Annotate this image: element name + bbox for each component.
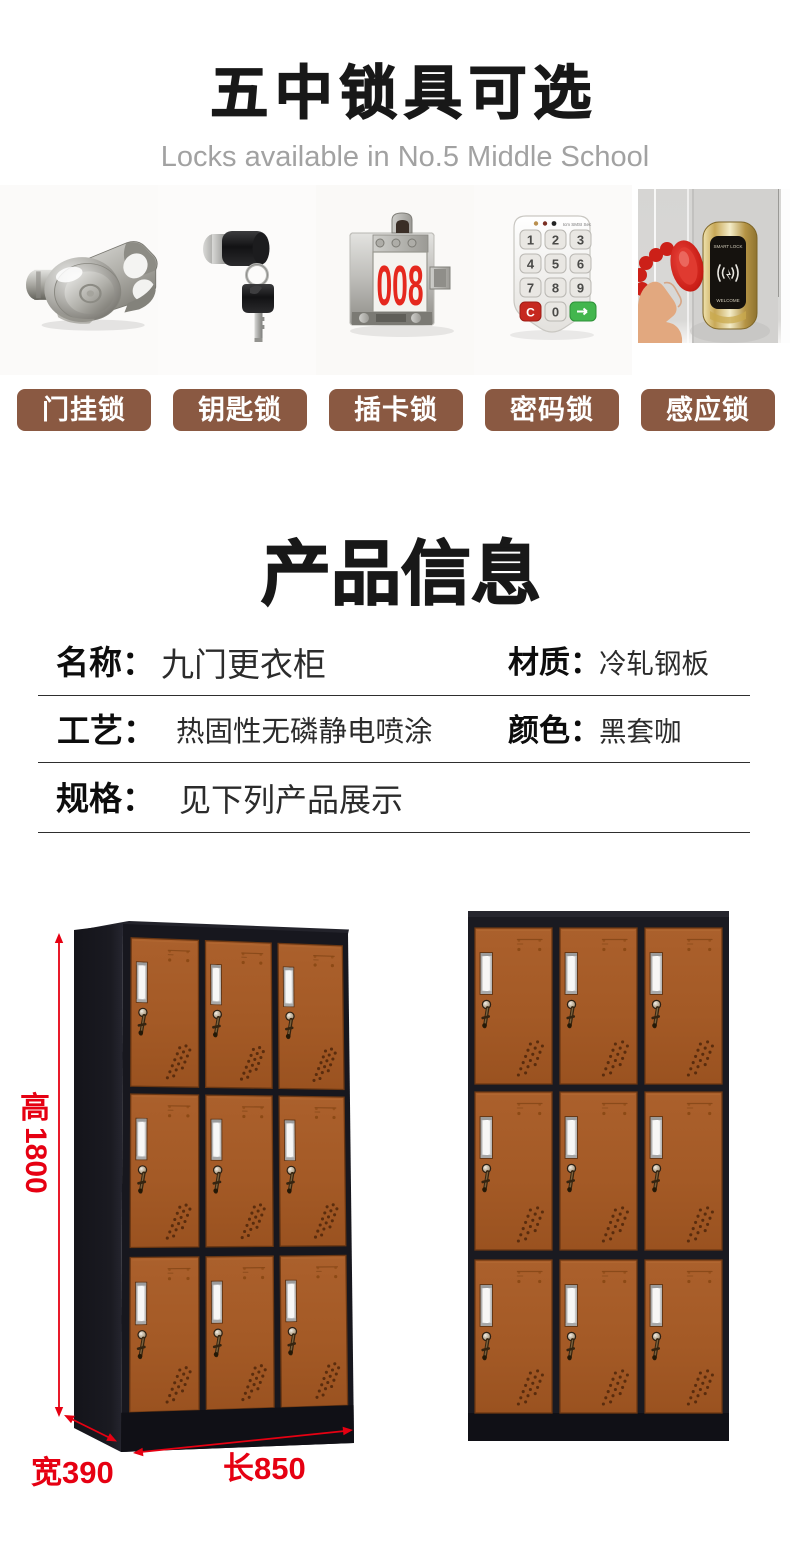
svg-text:Icm SMSI Sec: Icm SMSI Sec [563,222,592,227]
svg-text:C: C [526,306,535,320]
svg-text:7: 7 [527,281,534,296]
svg-text:1: 1 [527,233,534,248]
svg-text:3: 3 [577,233,584,248]
svg-text:5: 5 [552,257,559,272]
svg-text:9: 9 [577,281,584,296]
svg-text:SMART LOCK: SMART LOCK [713,244,742,249]
svg-text:0: 0 [552,305,559,320]
svg-text:WELCOME: WELCOME [716,298,739,303]
svg-text:6: 6 [577,257,584,272]
svg-text:008: 008 [377,254,424,318]
svg-text:2: 2 [552,233,559,248]
svg-text:4: 4 [527,257,535,272]
svg-text:8: 8 [552,281,559,296]
